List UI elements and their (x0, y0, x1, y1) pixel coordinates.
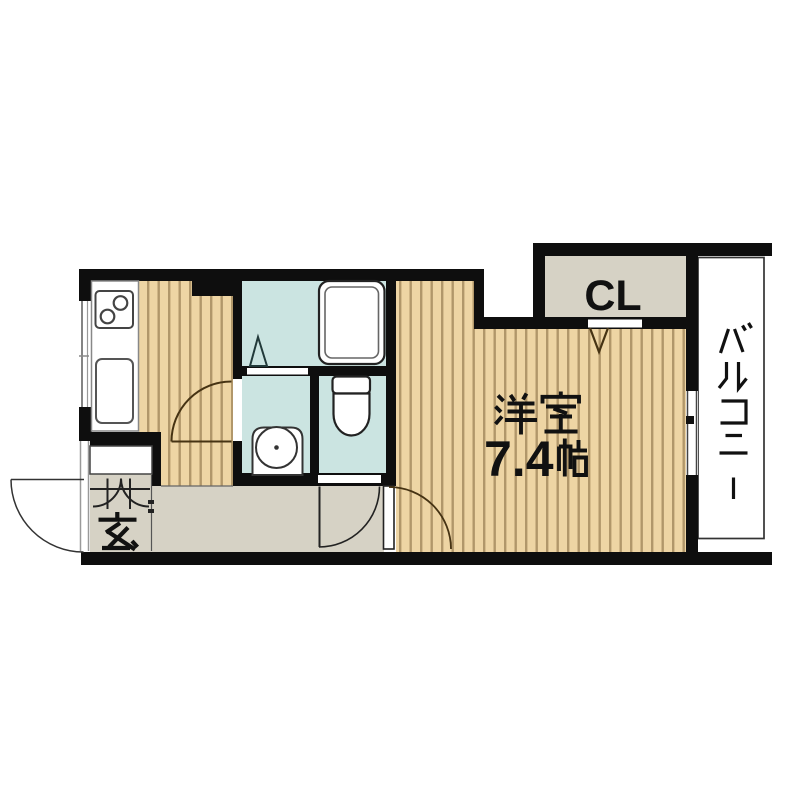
svg-text:7.4: 7.4 (484, 431, 554, 487)
svg-text:CL: CL (584, 272, 641, 320)
